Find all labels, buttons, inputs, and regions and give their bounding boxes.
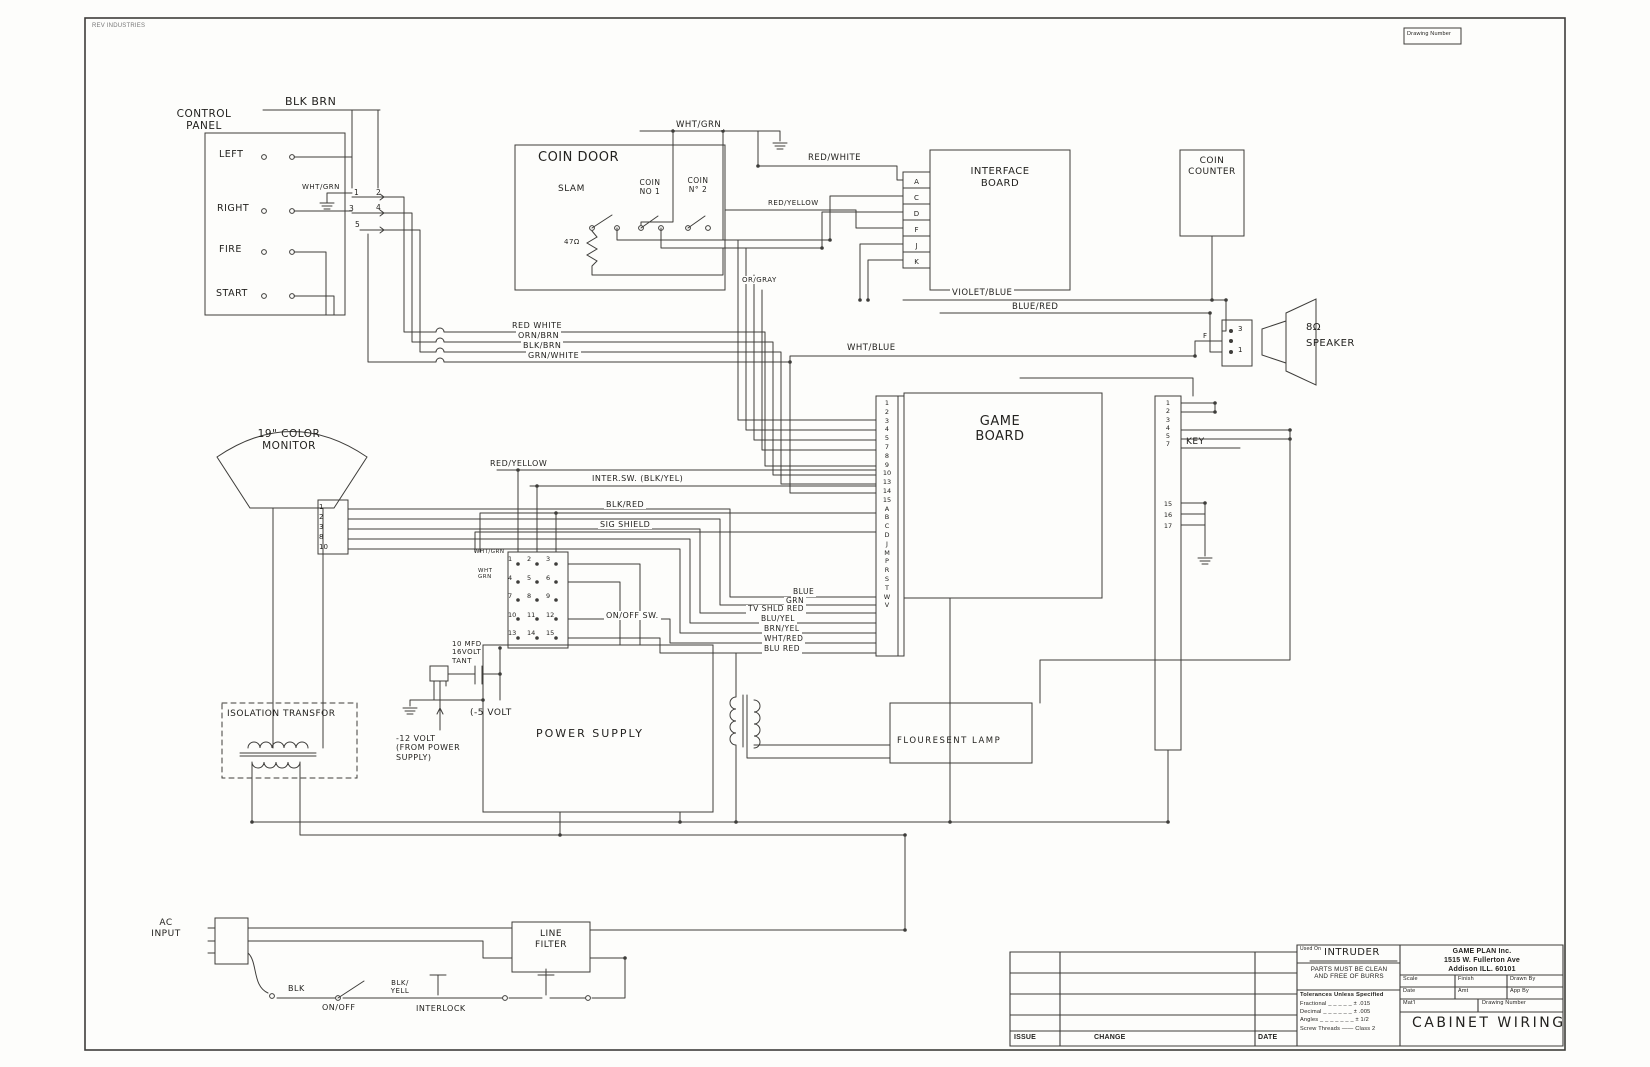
ps-connector-grid: 123 456 789 101112 131415 <box>508 555 565 648</box>
interface-pin: F <box>914 222 918 238</box>
speaker-pin-f: F <box>1203 332 1208 340</box>
gb-pin: 9 <box>885 461 889 470</box>
gb-pin: B <box>885 513 889 522</box>
switch-label-right: RIGHT <box>217 203 249 214</box>
gb-pin: D <box>884 531 889 540</box>
key-pin: 3 <box>1166 416 1170 424</box>
interface-pin: A <box>914 174 919 190</box>
cp-pin-1: 1 <box>354 189 359 198</box>
regulator-transistor <box>430 666 448 681</box>
monitor-pin: 3 <box>319 523 323 533</box>
key-connector-top-pins: 123457 <box>1155 399 1181 449</box>
switch-label-coin2: COIN N° 2 <box>680 177 716 195</box>
wire-label-or-gray: OR/GRAY <box>740 276 779 284</box>
monitor-pin: 2 <box>319 513 323 523</box>
gb-pin: 14 <box>883 487 891 496</box>
speaker-label: 8Ω <box>1306 322 1321 334</box>
tolerance-decimal: Decimal _ _ _ _ _ _ ± .005 <box>1300 1009 1370 1016</box>
interface-pin: J <box>915 238 917 254</box>
drawing-number-label: Drawing Number <box>1482 1000 1526 1006</box>
wire-label-wht-blue: WHT/BLUE <box>845 343 898 353</box>
wire-label-blk-red: BLK/RED <box>604 500 646 509</box>
wire-label-blue-red: BLUE/RED <box>1010 302 1060 312</box>
amt-label: Amt <box>1458 988 1468 994</box>
key-pin: 16 <box>1164 510 1172 521</box>
switch-label-fire: FIRE <box>219 244 242 255</box>
gb-pin: 3 <box>885 417 889 426</box>
gb-pin: 8 <box>885 452 889 461</box>
switch-label-start: START <box>216 288 248 299</box>
gb-pin: S <box>885 575 889 584</box>
monitor-pin-column: 123810 <box>319 503 333 553</box>
interface-pin: K <box>914 254 919 270</box>
monitor-pin: 10 <box>319 543 328 553</box>
wire-label-blk-yell: BLK/ YELL <box>385 979 415 996</box>
coin-counter-title: COIN COUNTER <box>1184 156 1240 177</box>
coin-door-box <box>515 145 725 290</box>
ac-input-title: AC INPUT <box>140 918 192 939</box>
ps-pin: 4 <box>508 574 527 593</box>
title-block-notes: PARTS MUST BE CLEAN AND FREE OF BURRS <box>1299 966 1399 981</box>
ps-pin: 7 <box>508 592 527 611</box>
ps-pin: 12 <box>546 611 565 630</box>
key-label: KEY <box>1186 437 1205 448</box>
coin-door-title: COIN DOOR <box>538 150 619 165</box>
wire-label-brn-yel: BRN/YEL <box>762 625 802 634</box>
gb-pin: R <box>885 566 890 575</box>
ps-pin: 13 <box>508 629 527 648</box>
tolerance-fractional: Fractional _ _ _ _ _ ± .015 <box>1300 1001 1370 1008</box>
tolerances-title: Tolerances Unless Specified <box>1300 992 1384 999</box>
gb-pin: 13 <box>883 478 891 487</box>
wire-label-grn-white: GRN/WHITE <box>526 351 581 360</box>
minus5-label: (-5 VOLT <box>470 708 512 719</box>
gb-pin: M <box>884 549 890 558</box>
wire-label-red-white: RED/WHITE <box>806 153 863 163</box>
key-pin: 7 <box>1166 440 1170 448</box>
key-pin: 5 <box>1166 432 1170 440</box>
cp-pin-5: 5 <box>355 221 360 230</box>
issue-label: ISSUE <box>1014 1034 1036 1042</box>
interface-board-title: INTERFACE BOARD <box>952 166 1048 190</box>
gb-pin: P <box>885 557 889 566</box>
gb-pin: T <box>885 584 889 593</box>
speaker-name: SPEAKER <box>1306 338 1355 350</box>
key-pin: 1 <box>1166 399 1170 407</box>
gb-pin: 10 <box>883 469 891 478</box>
ps-pin: 15 <box>546 629 565 648</box>
change-label: CHANGE <box>1094 1034 1126 1042</box>
wire-label-wht-grn-top: WHT/GRN <box>674 120 723 130</box>
game-board-pin-column: 1234578910131415ABCDJMPRSTWV <box>876 399 898 610</box>
key-pin: 17 <box>1164 521 1172 532</box>
gb-pin: W <box>884 593 890 602</box>
ps-pin: 2 <box>527 555 546 574</box>
wire-label-blu-red: BLU RED <box>762 645 802 654</box>
capacitor-label: 10 MFD 16VOLT TANT <box>452 640 482 665</box>
fluorescent-lamp-title: FLOURESENT LAMP <box>897 736 1001 746</box>
wire-label-red-yellow-top: RED/YELLOW <box>766 199 821 207</box>
app-by-label: App By <box>1510 988 1529 994</box>
ps-pin: 14 <box>527 629 546 648</box>
gb-pin: C <box>885 522 890 531</box>
key-pin: 15 <box>1164 499 1172 510</box>
wire-label-inter-sw: INTER.SW. (BLK/YEL) <box>590 474 685 483</box>
monitor-title: 19" COLOR MONITOR <box>234 428 344 453</box>
ac-input-box <box>215 918 248 964</box>
wire-label-wht-grn-b: WHT GRN <box>478 568 492 581</box>
company-address: GAME PLAN Inc. 1515 W. Fullerton Ave Add… <box>1402 947 1562 974</box>
resistor-value: 47Ω <box>564 238 580 246</box>
used-on-label: Used On <box>1300 947 1321 953</box>
ps-pin: 8 <box>527 592 546 611</box>
ps-pin: 11 <box>527 611 546 630</box>
wire-label-blu-yel: BLU/YEL <box>759 615 797 624</box>
switch-label-coin1: COIN NO 1 <box>632 179 668 197</box>
gb-pin: 1 <box>885 399 889 408</box>
wire-label-red-yellow-mid: RED/YELLOW <box>488 459 549 468</box>
page-border <box>85 18 1565 1050</box>
gb-pin: 4 <box>885 425 889 434</box>
isolation-transformer-title: ISOLATION TRANSFOR <box>227 709 335 720</box>
wire-label-blk: BLK <box>288 984 305 993</box>
gb-pin: A <box>885 505 889 514</box>
wire-label-wht-grn-cp: WHT/GRN <box>302 183 340 191</box>
key-pin: 4 <box>1166 424 1170 432</box>
switch-label-slam: SLAM <box>558 184 585 195</box>
wire-label-tv-shld-red: TV SHLD RED <box>746 605 806 614</box>
gb-pin: 15 <box>883 496 891 505</box>
wire-label-violet-blue: VIOLET/BLUE <box>950 288 1014 298</box>
monitor-pin: 1 <box>319 503 323 513</box>
schematic-sheet: REV INDUSTRIES Drawing Number CONTROL PA… <box>0 0 1650 1067</box>
ps-pin: 5 <box>527 574 546 593</box>
wire-label-sig-shield: SIG SHIELD <box>598 520 652 529</box>
cp-pin-2: 2 <box>376 189 381 198</box>
gb-pin: 7 <box>885 443 889 452</box>
interface-pin: D <box>914 206 919 222</box>
date-label: Date <box>1403 988 1415 994</box>
switch-label-left: LEFT <box>219 149 243 160</box>
scale-label: Scale <box>1403 976 1418 982</box>
gb-pin: 5 <box>885 434 889 443</box>
wire-label-wht-grn-a: WHT/GRN <box>474 549 504 555</box>
ps-pin: 6 <box>546 574 565 593</box>
date-column-label: DATE <box>1258 1034 1277 1042</box>
wire-label-blk-brn: BLK BRN <box>285 96 336 109</box>
power-supply-title: POWER SUPPLY <box>536 728 644 741</box>
fluorescent-lamp-box <box>890 703 1032 763</box>
drawn-by-label: Drawn By <box>1510 976 1535 982</box>
ps-pin: 3 <box>546 555 565 574</box>
wire-label-wht-red: WHT/RED <box>762 635 805 644</box>
tolerance-screw: Screw Threads —— Class 2 <box>1300 1026 1375 1033</box>
key-connector-mid-pins: 151617 <box>1155 499 1181 531</box>
ps-pin: 9 <box>546 592 565 611</box>
game-board-title: GAME BOARD <box>940 414 1060 445</box>
wire-label-blk-brn2: BLK/BRN <box>521 341 563 350</box>
interface-pin-column: A C D F J K <box>903 174 930 270</box>
interface-pin: C <box>914 190 919 206</box>
cp-pin-3: 3 <box>349 205 354 214</box>
switch-label-on-off: ON/OFF <box>322 1003 355 1012</box>
control-panel-title: CONTROL PANEL <box>168 108 240 133</box>
drawing-number-box-label: Drawing Number <box>1407 31 1451 37</box>
key-pin: 2 <box>1166 407 1170 415</box>
finish-label: Finish <box>1458 976 1474 982</box>
wire-label-red-white2: RED WHITE <box>510 321 564 330</box>
used-on-value: INTRUDER <box>1324 947 1380 959</box>
wire-label-on-off-sw: ON/OFF SW. <box>604 611 661 620</box>
drawing-title: CABINET WIRING <box>1412 1015 1566 1032</box>
wires <box>208 110 1290 998</box>
ps-pin: 1 <box>508 555 527 574</box>
gb-pin: 2 <box>885 408 889 417</box>
gb-pin: V <box>885 601 889 610</box>
minus12-label: -12 VOLT (FROM POWER SUPPLY) <box>396 734 460 762</box>
gb-pin: J <box>886 540 888 549</box>
monitor-pin: 8 <box>319 533 323 543</box>
cp-pin-4: 4 <box>376 204 381 213</box>
wire-label-orn-brn: ORN/BRN <box>516 331 561 340</box>
corner-stamp: REV INDUSTRIES <box>92 23 145 30</box>
switch-label-interlock: INTERLOCK <box>416 1004 466 1013</box>
speaker-pin-3: 3 <box>1238 325 1243 333</box>
line-filter-title: LINE FILTER <box>516 929 586 950</box>
matl-label: Mat'l <box>1403 1000 1415 1006</box>
key-connector <box>1155 396 1181 750</box>
ps-pin: 10 <box>508 611 527 630</box>
tolerance-angles: Angles _ _ _ _ _ _ _ ± 1/2 <box>1300 1017 1369 1024</box>
speaker-pin-1: 1 <box>1238 346 1243 354</box>
